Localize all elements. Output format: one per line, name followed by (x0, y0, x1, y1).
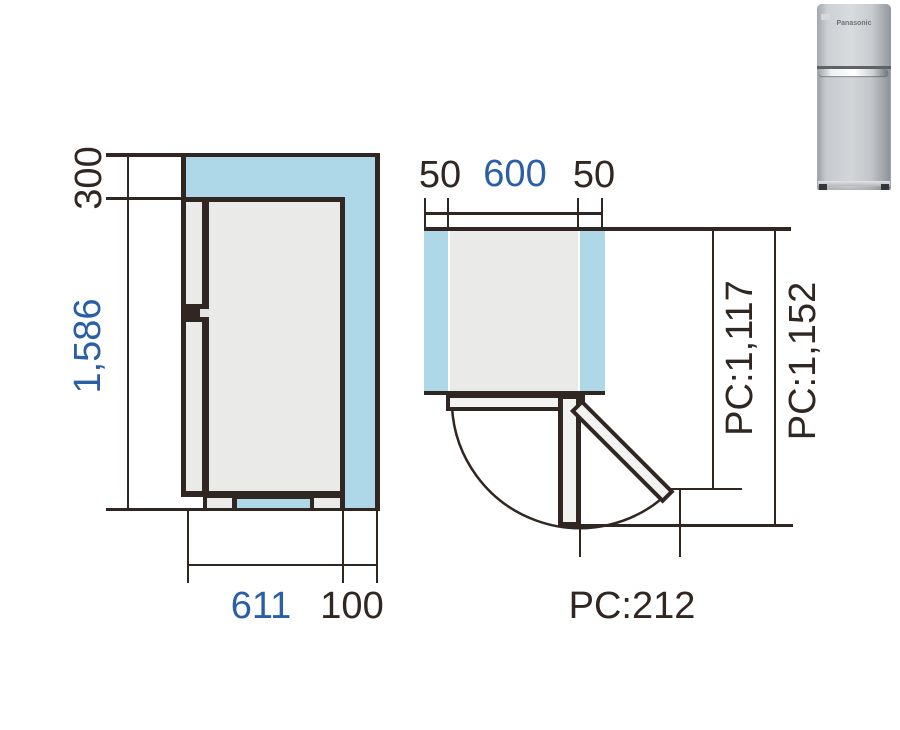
side-fridge-top-extension-line (106, 197, 183, 200)
side-rear-foot (314, 498, 340, 508)
side-clearance-left-border (181, 157, 186, 201)
door-open-135 (570, 399, 675, 504)
side-door-handle-gap (200, 309, 209, 317)
side-fridge-cabinet (209, 202, 340, 491)
side-clearance-right-border (375, 153, 380, 509)
dim-label-depth: 611 (231, 587, 292, 625)
pc-inner-dim-line (712, 231, 714, 489)
dim-label-pc-outer: PC:1,152 (784, 282, 822, 440)
side-front-foot (207, 498, 232, 508)
side-vertical-dim-line (127, 155, 129, 509)
pc-outer-dim-bottom-line (563, 524, 793, 527)
side-fridge-door-panel (186, 202, 202, 491)
top-view-back-line (424, 227, 791, 231)
top-width-dim-line (424, 212, 603, 215)
pc-outer-dim-line (774, 231, 776, 526)
dim-label-left-clearance: 50 (419, 156, 461, 194)
side-dim-proj-front (187, 511, 189, 583)
side-dim-proj-back (342, 511, 344, 583)
dim-label-pc-bottom: PC:212 (569, 587, 696, 625)
side-bottom-dim-line (187, 564, 378, 566)
diagram-canvas (0, 0, 900, 730)
fridge-handle-bar (819, 69, 888, 76)
fridge-right-foot (881, 184, 889, 190)
dim-label-width: 600 (483, 155, 546, 193)
dim-label-height: 1,586 (69, 298, 107, 393)
installation-diagram: 300 1,586 611 100 50 600 50 PC:1,117 PC:… (0, 0, 900, 730)
side-dim-proj-wall (376, 511, 378, 583)
dim-label-top-clearance: 300 (70, 146, 108, 209)
product-photo: Panasonic (817, 4, 891, 190)
floor-line (106, 508, 380, 511)
pc212-tick-right (679, 490, 681, 557)
side-view-diagram (106, 153, 380, 583)
dim-label-pc-inner: PC:1,117 (721, 280, 759, 436)
side-rear-clearance-area (345, 157, 375, 509)
side-clearance-top-border (106, 153, 380, 157)
door-open-90-panel (563, 399, 576, 522)
top-left-clearance-area (424, 231, 448, 393)
top-right-clearance-area (580, 231, 605, 393)
fridge-left-foot (819, 184, 827, 190)
pc-inner-dim-bottom-tick (668, 488, 742, 490)
top-view-cabinet (450, 231, 578, 393)
dim-label-right-clearance: 50 (573, 156, 615, 194)
brand-logo: Panasonic (817, 20, 891, 27)
door-open-135-panel (576, 405, 669, 498)
side-base-clearance-strip (237, 499, 310, 508)
pc212-tick-left (579, 527, 581, 557)
fridge-base-strip (818, 181, 890, 186)
dim-label-rear-clearance: 100 (320, 587, 383, 625)
